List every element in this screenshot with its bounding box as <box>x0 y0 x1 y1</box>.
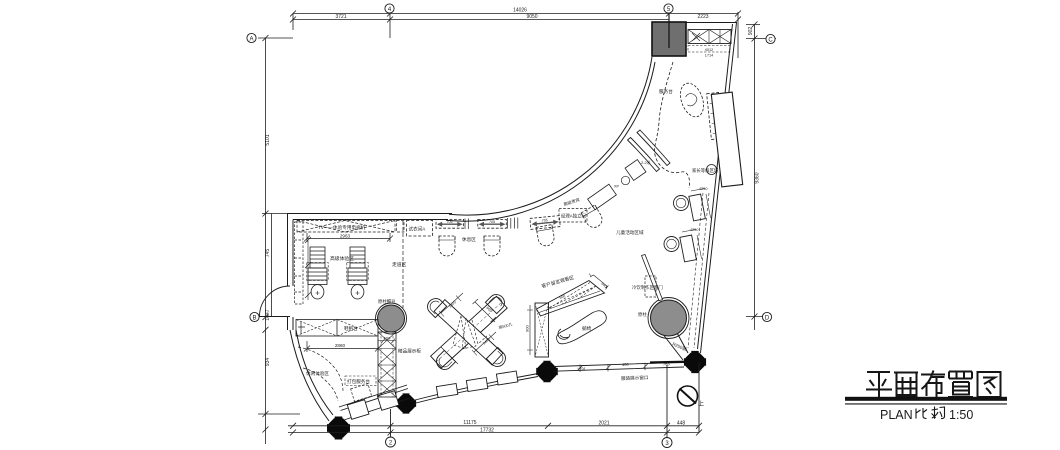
svg-text:1791: 1791 <box>577 366 587 371</box>
svg-text:TV——体验专用电视机: TV——体验专用电视机 <box>318 224 366 231</box>
svg-text:1647: 1647 <box>265 309 271 320</box>
svg-text:705: 705 <box>542 218 548 223</box>
svg-text:XP: XP <box>614 185 620 189</box>
svg-text:14026: 14026 <box>513 8 527 14</box>
svg-text:400: 400 <box>622 362 630 367</box>
svg-text:448: 448 <box>677 421 686 427</box>
svg-text:4250: 4250 <box>690 228 698 232</box>
svg-text:902: 902 <box>748 27 754 36</box>
svg-text:934: 934 <box>265 358 271 367</box>
svg-text:原柱: 原柱 <box>638 311 647 318</box>
svg-text:鞋柜台: 鞋柜台 <box>344 325 358 332</box>
svg-text:走道区: 走道区 <box>392 261 407 268</box>
svg-text:9050: 9050 <box>526 14 537 20</box>
svg-text:2021: 2021 <box>598 421 609 427</box>
svg-text:900: 900 <box>525 325 530 332</box>
svg-text:精品展示柜: 精品展示柜 <box>398 348 421 355</box>
svg-text:D: D <box>765 316 770 322</box>
svg-text:经理A独立间: 经理A独立间 <box>561 213 586 220</box>
svg-text:5101: 5101 <box>265 134 271 145</box>
svg-text:服务台: 服务台 <box>659 88 673 95</box>
svg-text:2860: 2860 <box>335 343 346 348</box>
svg-text:躺椅: 躺椅 <box>582 325 592 332</box>
svg-text:2.2米: 2.2米 <box>641 159 651 165</box>
svg-text:4012: 4012 <box>705 48 713 52</box>
svg-text:休闲体验区: 休闲体验区 <box>306 370 329 377</box>
svg-text:高级体验区: 高级体验区 <box>330 255 354 262</box>
svg-text:B: B <box>252 316 256 322</box>
svg-text:3721: 3721 <box>335 14 346 20</box>
svg-text:试衣间A: 试衣间A <box>409 226 427 233</box>
svg-text:家长等候区域: 家长等候区域 <box>692 167 719 174</box>
svg-text:17732: 17732 <box>480 428 494 434</box>
svg-text:4250: 4250 <box>699 187 707 191</box>
svg-text:1714: 1714 <box>705 54 713 58</box>
svg-text:原柱细豆: 原柱细豆 <box>378 298 396 305</box>
svg-text:705: 705 <box>447 220 453 224</box>
svg-text:11175: 11175 <box>463 420 476 426</box>
svg-text:2223: 2223 <box>697 14 708 20</box>
svg-text:C: C <box>768 38 773 44</box>
svg-text:A: A <box>249 37 253 43</box>
svg-text:冷饮制作区域门: 冷饮制作区域门 <box>632 284 663 291</box>
svg-text:儿童活动区域: 儿童活动区域 <box>616 229 644 236</box>
svg-text:600: 600 <box>384 336 391 341</box>
svg-text:9360: 9360 <box>755 172 761 183</box>
svg-text:休息区: 休息区 <box>462 236 476 243</box>
svg-text:1:50: 1:50 <box>949 408 973 422</box>
svg-text:745: 745 <box>265 249 271 258</box>
svg-text:上: 上 <box>698 400 704 408</box>
svg-text:2963: 2963 <box>340 234 351 239</box>
svg-text:PLAN: PLAN <box>880 408 913 422</box>
svg-text:705: 705 <box>489 220 495 224</box>
